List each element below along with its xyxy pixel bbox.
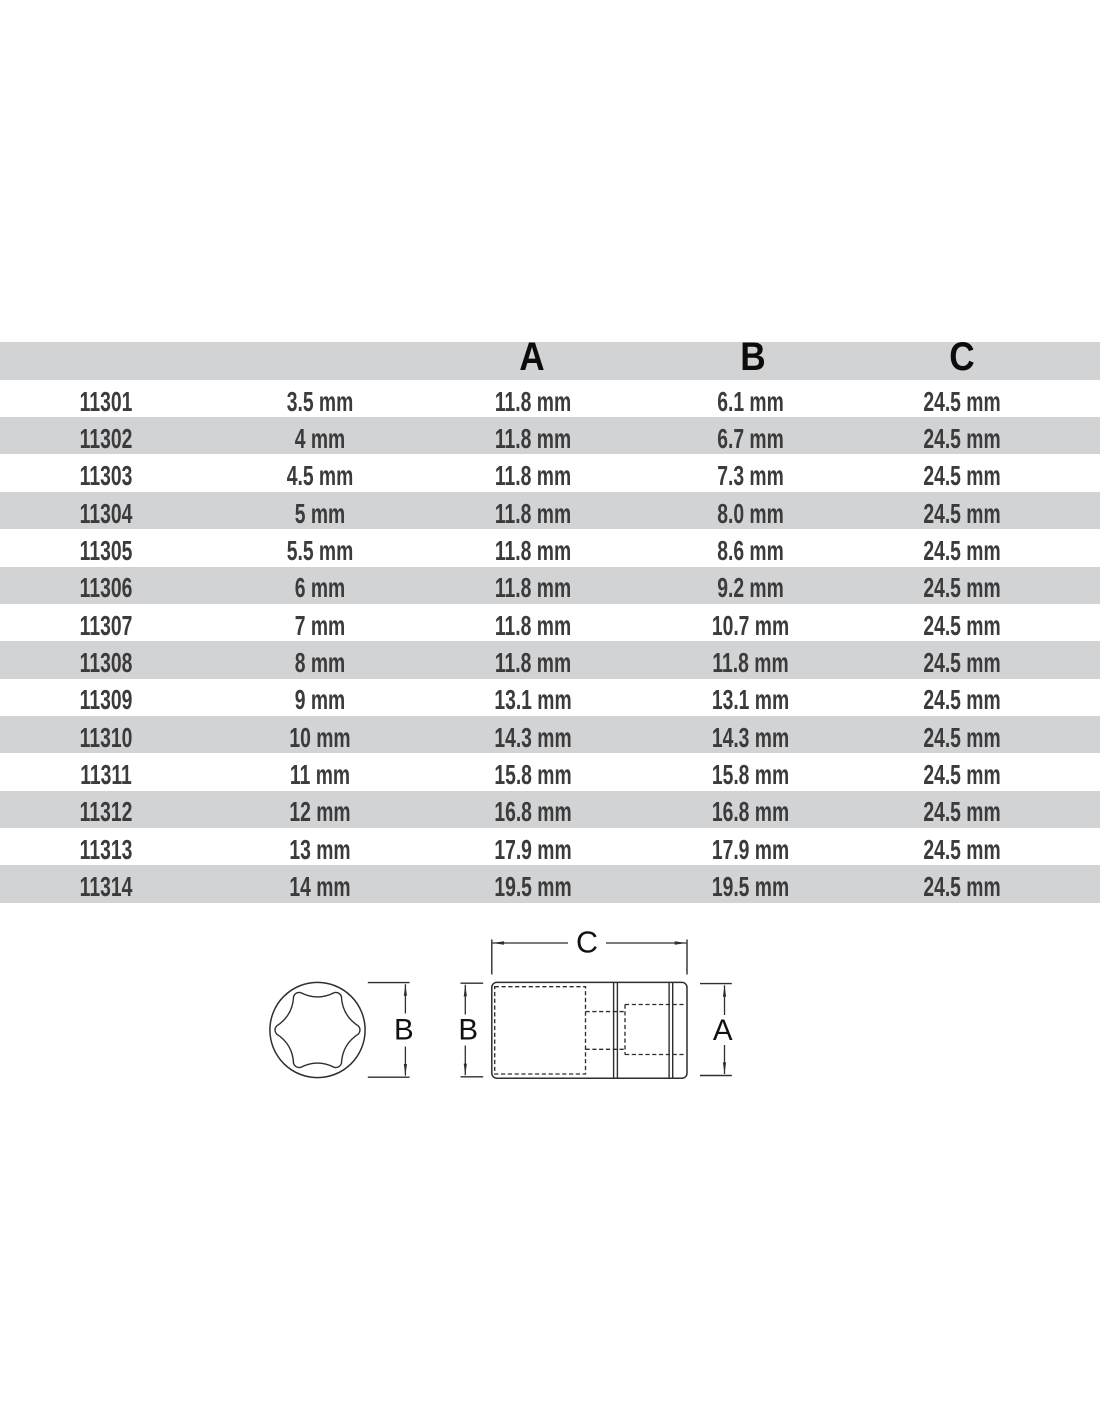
svg-text:A: A [713, 1014, 733, 1047]
svg-text:B: B [394, 1014, 414, 1047]
svg-text:B: B [458, 1014, 478, 1047]
svg-text:C: C [576, 926, 598, 960]
